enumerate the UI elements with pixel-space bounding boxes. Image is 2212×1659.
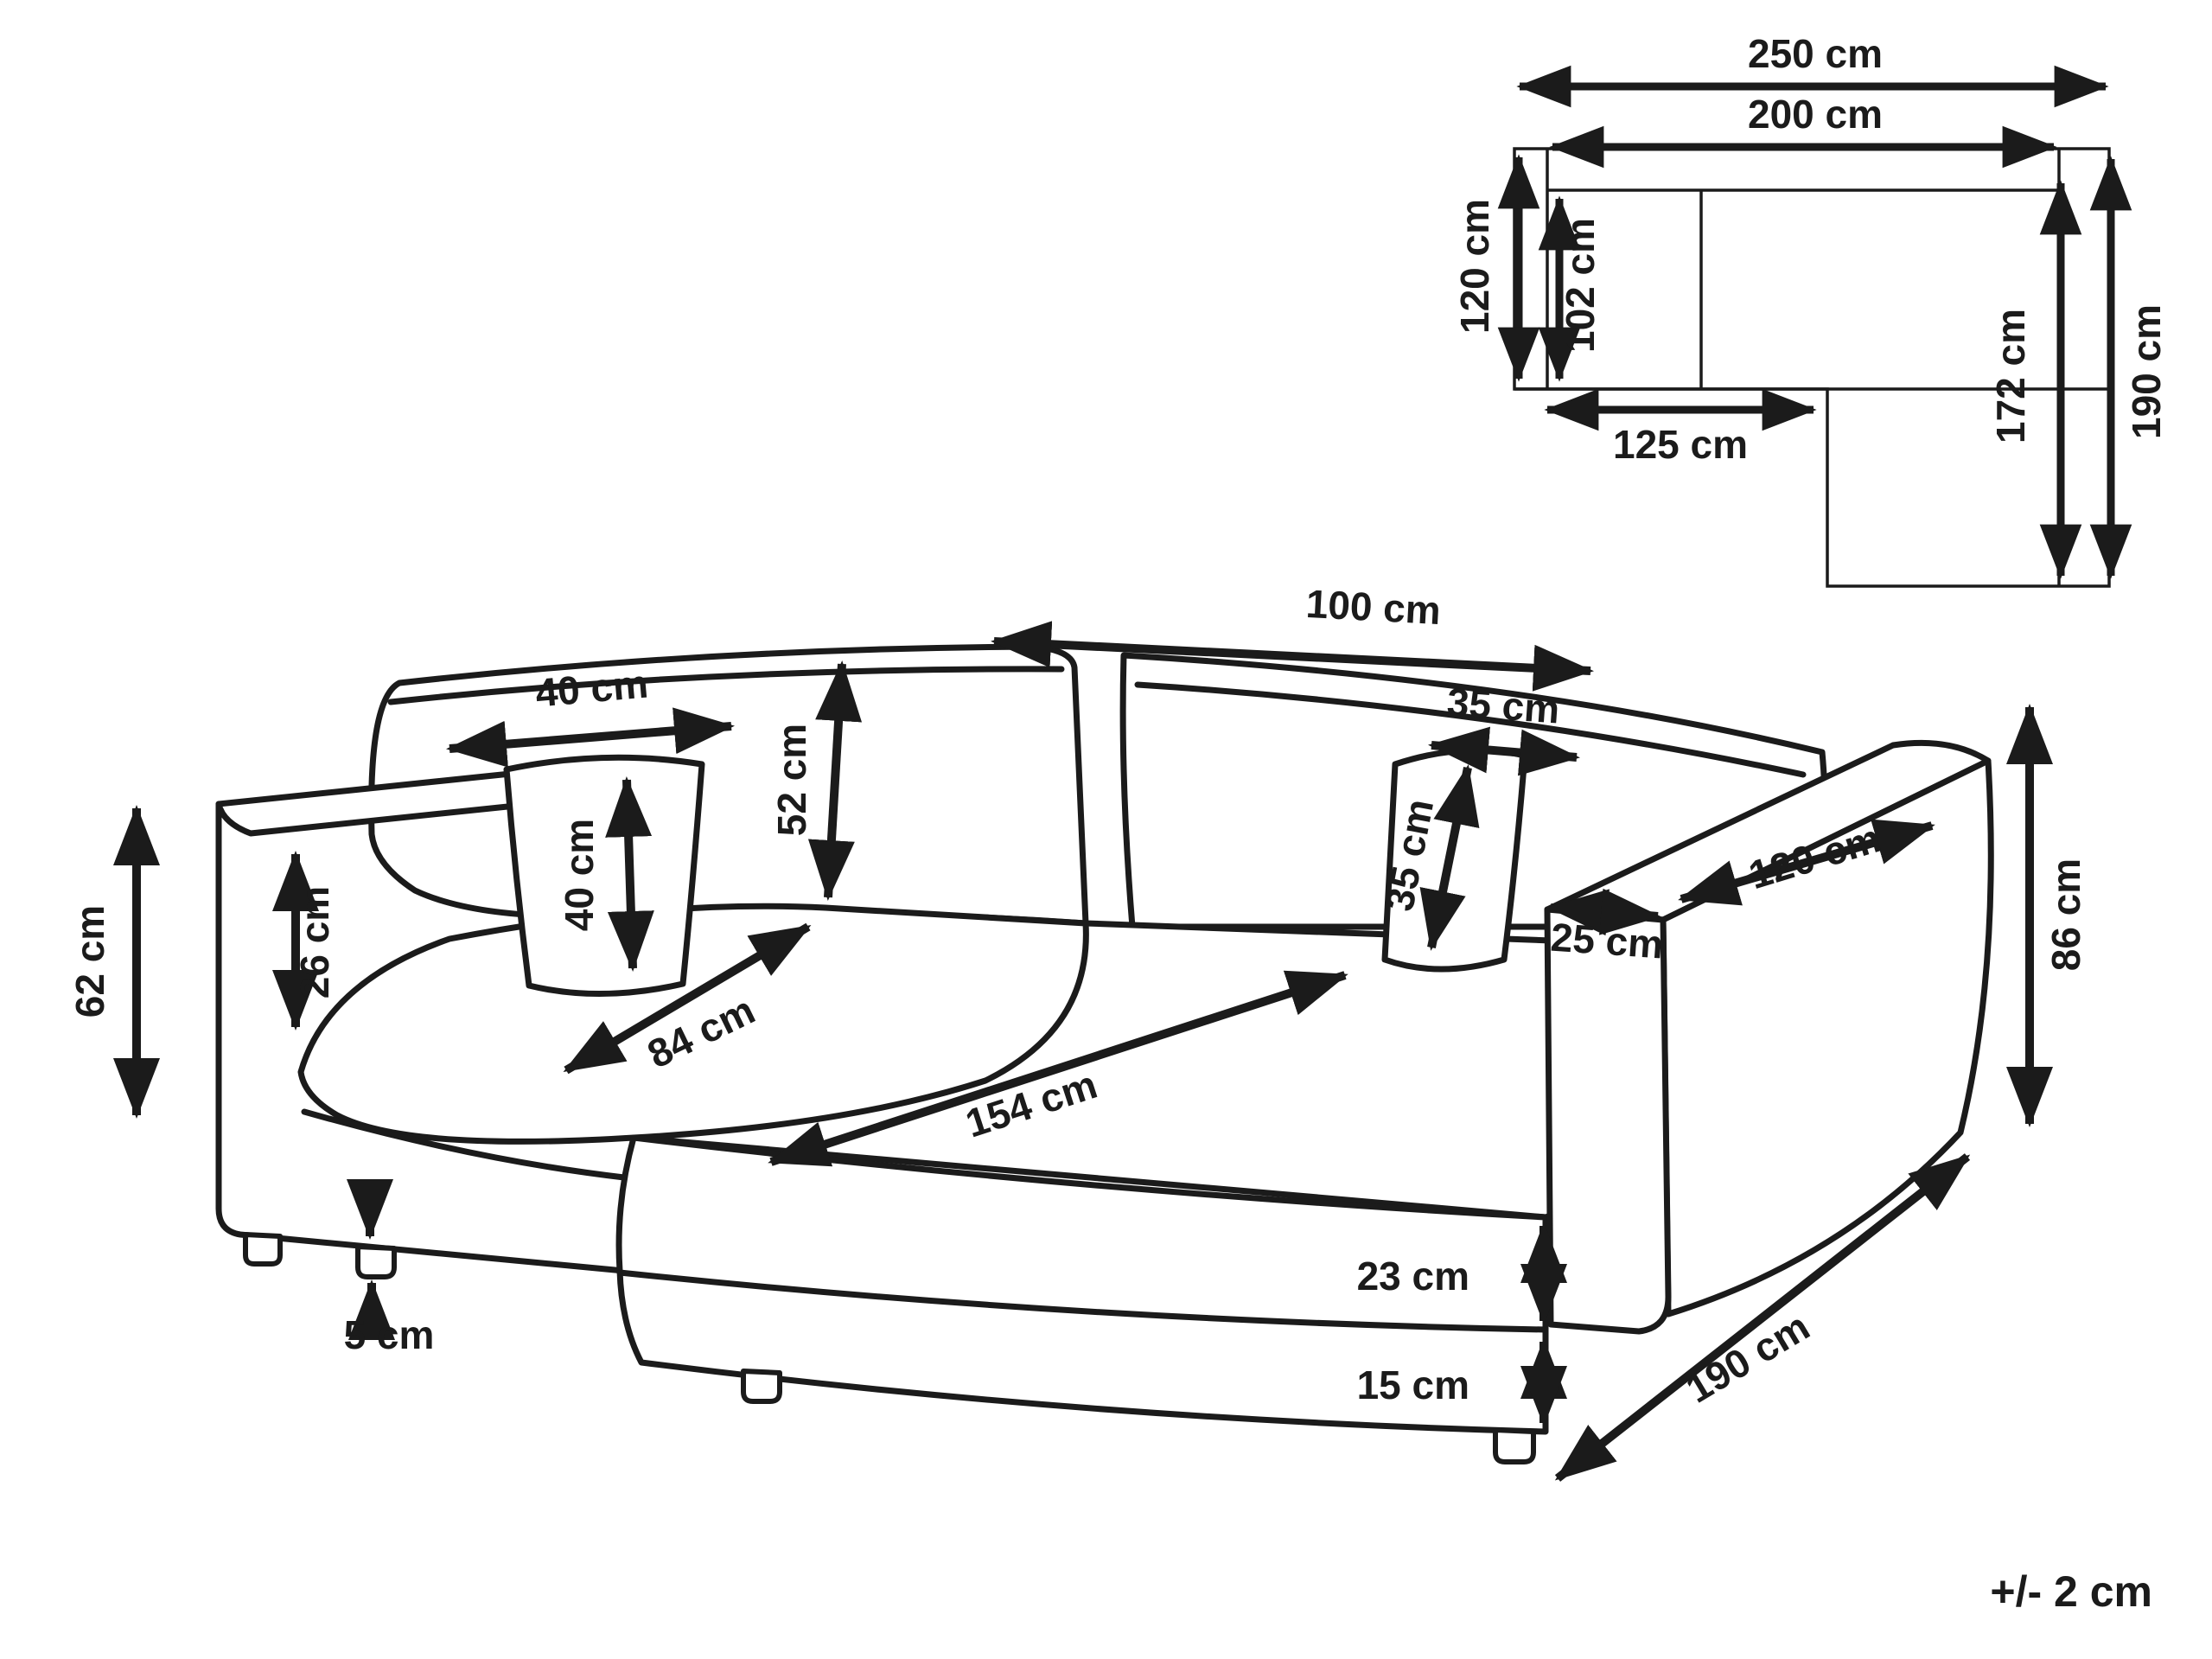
plan-label-left-depth: 120 cm: [1452, 199, 1497, 334]
sofa-leg-front-left: [245, 1235, 280, 1264]
label-armrest-above-seat: 26 cm: [292, 886, 337, 999]
label-armrest-front-width: 25 cm: [1549, 915, 1665, 967]
sofa-dimension-diagram: 250 cm 200 cm 120 cm 102 cm 125 cm 172 c…: [0, 0, 2212, 1659]
label-base-height: 15 cm: [1357, 1362, 1469, 1407]
plan-label-overall-width: 250 cm: [1748, 31, 1883, 76]
label-chaise-total-length: 190 cm: [1679, 1304, 1818, 1412]
label-armrest-height: 62 cm: [67, 905, 112, 1018]
plan-label-chaise-length: 190 cm: [2124, 304, 2169, 439]
label-right-pillow-width: 35 cm: [1445, 680, 1561, 732]
label-backrest-height: 52 cm: [769, 724, 814, 836]
plan-label-chaise-inner-length: 172 cm: [1988, 309, 2033, 443]
arrow-left-pillow-height: [627, 780, 633, 968]
diagram-canvas: 250 cm 200 cm 120 cm 102 cm 125 cm 172 c…: [0, 0, 2212, 1659]
right-armrest-front-face: [1547, 909, 1668, 1331]
sofa-leg-chaise-left: [743, 1371, 780, 1401]
plan-view: 250 cm 200 cm 120 cm 102 cm 125 cm 172 c…: [1452, 31, 2169, 586]
label-backrest-width: 100 cm: [1305, 581, 1443, 633]
plan-label-body-width: 200 cm: [1748, 92, 1883, 137]
plan-label-left-section-width: 125 cm: [1613, 422, 1748, 467]
sofa-leg-left: [358, 1247, 394, 1277]
plan-label-left-seat-depth: 102 cm: [1558, 218, 1603, 353]
label-overall-height: 86 cm: [2043, 858, 2088, 971]
sofa-leg-chaise-right: [1495, 1430, 1533, 1462]
label-seat-cushion-height: 23 cm: [1357, 1254, 1469, 1298]
left-pillow: [507, 757, 702, 993]
label-left-pillow-height: 40 cm: [557, 819, 602, 931]
label-leg-height: 5 cm: [344, 1312, 435, 1357]
tolerance-note: +/- 2 cm: [1990, 1567, 2152, 1616]
